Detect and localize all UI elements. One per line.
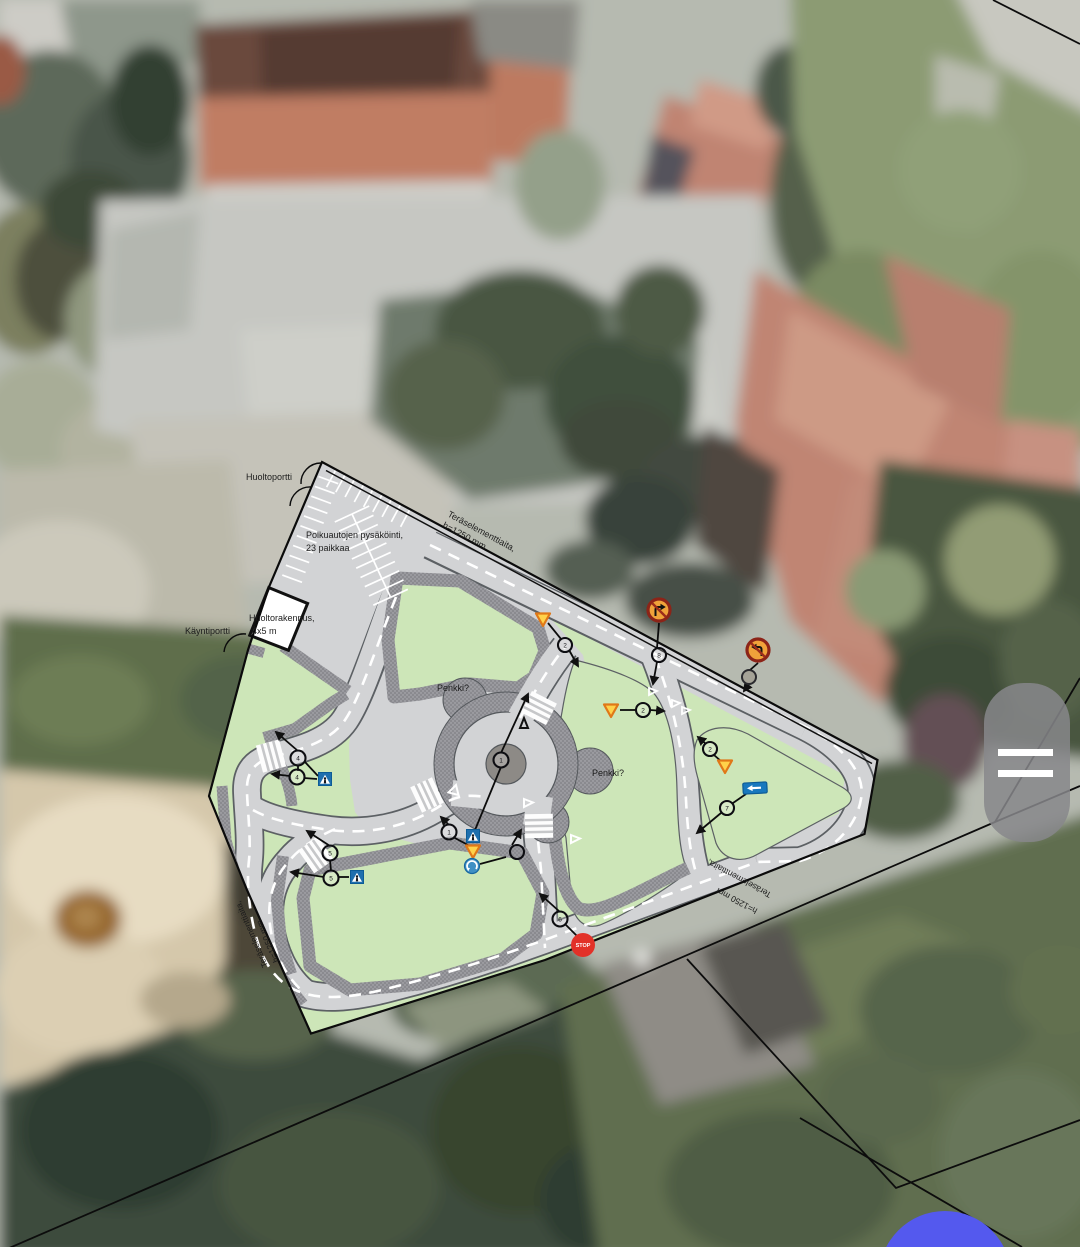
svg-text:Käyntiportti: Käyntiportti — [185, 626, 230, 636]
svg-text:4: 4 — [296, 756, 300, 763]
svg-text:Penkki?: Penkki? — [437, 683, 469, 693]
svg-text:5: 5 — [329, 876, 333, 883]
svg-text:2: 2 — [708, 747, 712, 754]
svg-text:Huoltorakennus,: Huoltorakennus, — [249, 613, 315, 623]
svg-text:23 paikkaa: 23 paikkaa — [306, 543, 350, 553]
svg-text:1: 1 — [499, 758, 503, 765]
svg-text:2: 2 — [563, 643, 567, 650]
svg-text:STOP: STOP — [576, 943, 591, 949]
svg-text:5: 5 — [328, 851, 332, 858]
svg-text:4: 4 — [295, 775, 299, 782]
svg-text:8: 8 — [657, 653, 661, 660]
svg-text:Penkki?: Penkki? — [592, 768, 624, 778]
svg-text:4x5 m: 4x5 m — [252, 626, 277, 636]
svg-text:1: 1 — [447, 830, 451, 837]
svg-text:Huoltoportti: Huoltoportti — [246, 472, 292, 482]
svg-text:2: 2 — [641, 708, 645, 715]
svg-text:Polkuautojen pysäköinti,: Polkuautojen pysäköinti, — [306, 530, 403, 540]
svg-text:7: 7 — [725, 806, 729, 813]
svg-text:6: 6 — [558, 917, 562, 924]
